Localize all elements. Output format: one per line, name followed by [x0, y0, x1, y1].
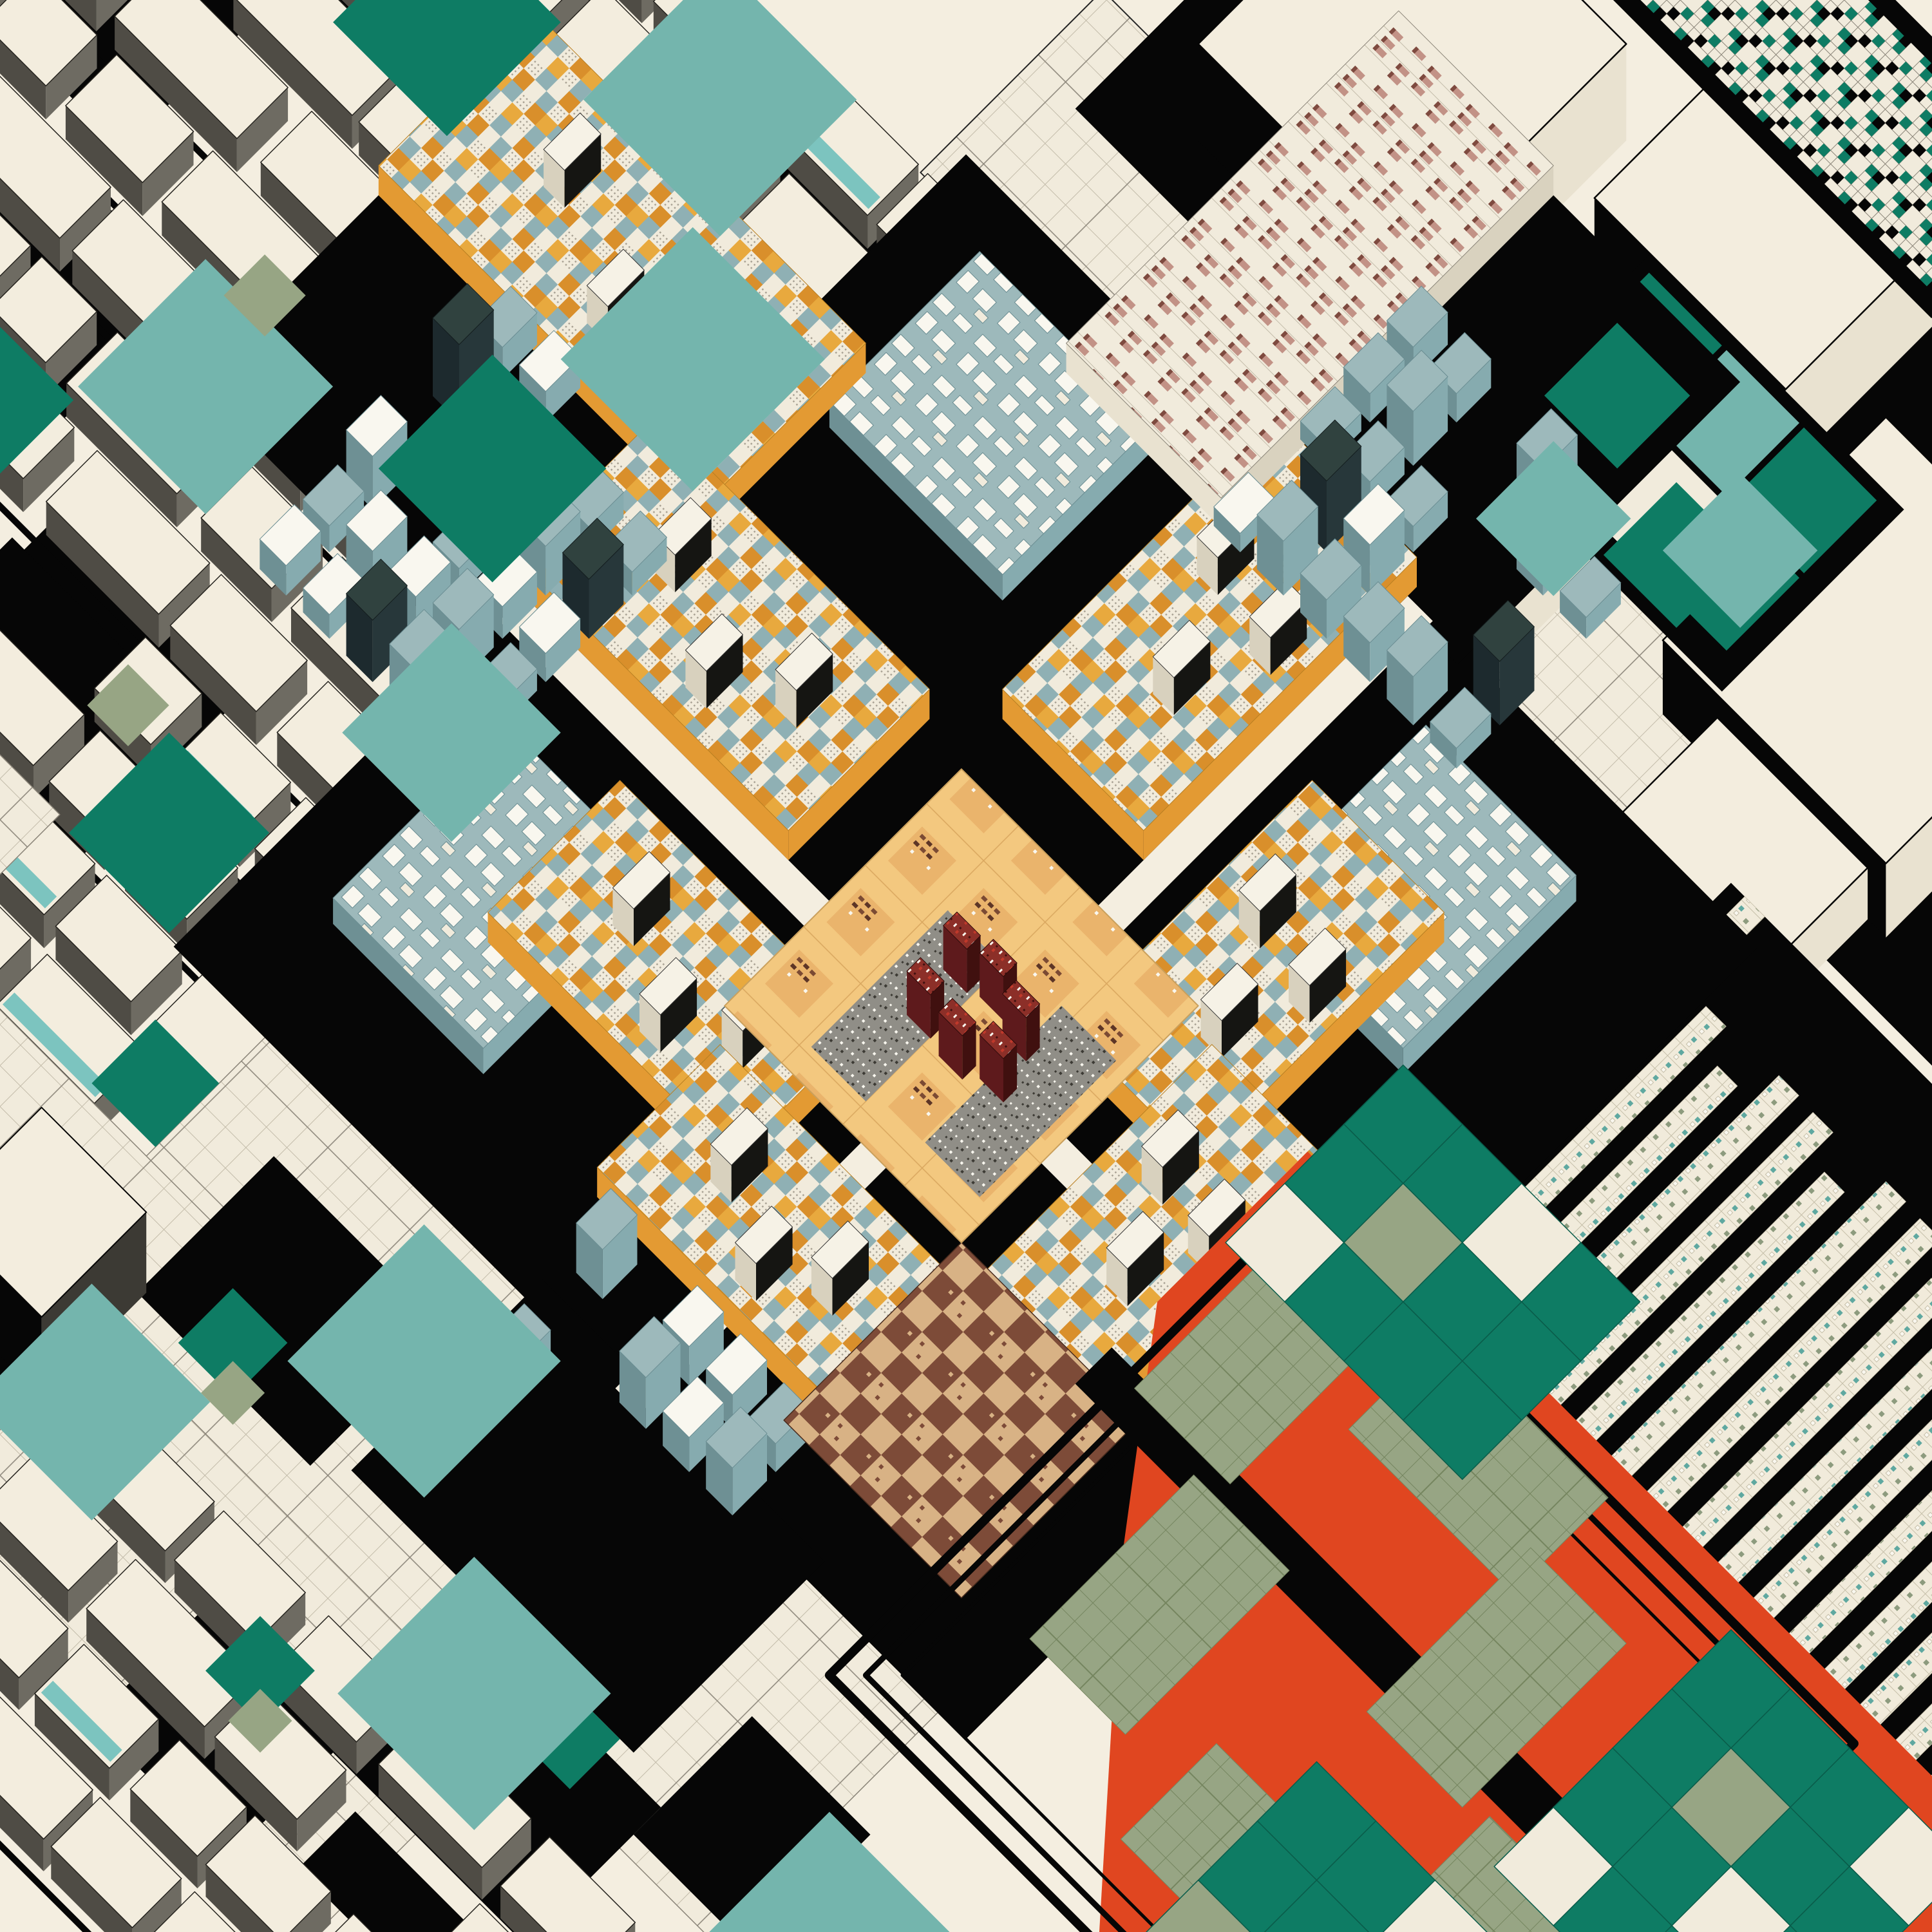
isometric-city-artwork: [0, 0, 1932, 1932]
